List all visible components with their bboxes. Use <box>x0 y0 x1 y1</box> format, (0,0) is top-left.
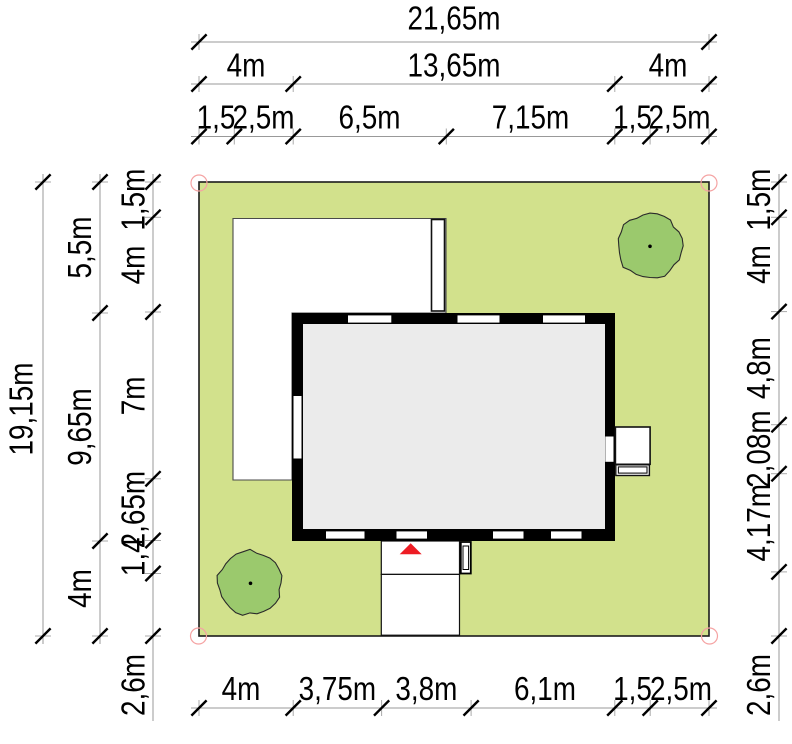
svg-text:7m: 7m <box>115 377 152 416</box>
svg-text:21,65m: 21,65m <box>408 0 501 37</box>
svg-text:2,6m: 2,6m <box>115 654 152 716</box>
svg-text:1,5: 1,5 <box>197 99 236 136</box>
svg-text:2,5m: 2,5m <box>233 99 295 136</box>
svg-text:1,4: 1,4 <box>115 537 152 576</box>
svg-text:5,5m: 5,5m <box>62 217 99 279</box>
svg-text:1,5: 1,5 <box>613 99 652 136</box>
svg-text:4m: 4m <box>115 246 152 285</box>
svg-text:4,17m: 4,17m <box>741 484 778 561</box>
svg-text:2,08m: 2,08m <box>741 410 778 487</box>
svg-text:6,1m: 6,1m <box>514 671 576 708</box>
svg-text:13,65m: 13,65m <box>408 47 501 84</box>
svg-text:4,8m: 4,8m <box>741 337 778 399</box>
svg-text:3,8m: 3,8m <box>395 671 457 708</box>
svg-text:19,15m: 19,15m <box>3 363 40 456</box>
svg-text:2,5m: 2,5m <box>649 99 711 136</box>
svg-text:4m: 4m <box>649 47 688 84</box>
svg-text:2,6m: 2,6m <box>741 654 778 716</box>
svg-text:4m: 4m <box>222 671 261 708</box>
svg-text:1,5m: 1,5m <box>115 169 152 231</box>
svg-text:4m: 4m <box>741 245 778 284</box>
svg-text:1,5: 1,5 <box>613 671 652 708</box>
svg-text:6,5m: 6,5m <box>339 99 401 136</box>
svg-text:7,15m: 7,15m <box>492 99 569 136</box>
svg-text:2,65m: 2,65m <box>115 471 152 548</box>
svg-text:1,5m: 1,5m <box>741 169 778 231</box>
svg-text:4m: 4m <box>227 47 266 84</box>
svg-text:2,5m: 2,5m <box>650 671 712 708</box>
svg-text:3,75m: 3,75m <box>299 671 376 708</box>
svg-text:4m: 4m <box>62 569 99 608</box>
svg-text:9,65m: 9,65m <box>62 388 99 465</box>
